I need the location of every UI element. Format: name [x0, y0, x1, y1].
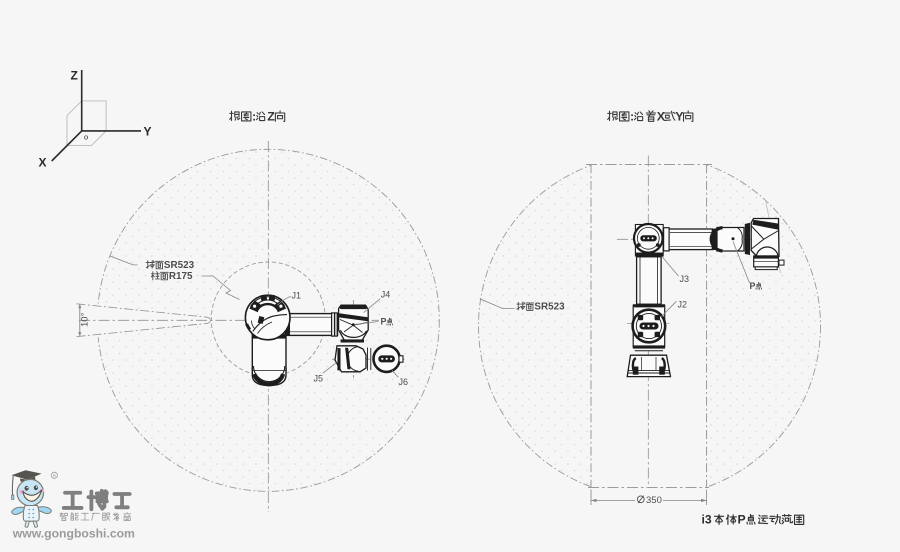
svg-text:P: P — [750, 281, 756, 291]
svg-text:Y: Y — [144, 125, 152, 139]
svg-text:P: P — [381, 317, 387, 327]
svg-text:J2: J2 — [678, 300, 688, 310]
svg-text:J4: J4 — [381, 290, 391, 300]
svg-text:350: 350 — [646, 495, 662, 506]
svg-text:P: P — [738, 513, 746, 527]
svg-text:R175: R175 — [169, 271, 193, 282]
svg-text:J6: J6 — [399, 377, 409, 387]
svg-text:J3: J3 — [680, 274, 690, 284]
svg-text:Z: Z — [267, 109, 275, 123]
svg-text:o: o — [84, 133, 88, 142]
svg-text:Z: Z — [71, 69, 78, 83]
svg-text:X: X — [39, 156, 47, 170]
svg-text:J5: J5 — [314, 373, 324, 383]
svg-text:X: X — [657, 109, 666, 123]
svg-text:10°: 10° — [80, 312, 91, 327]
svg-text::: : — [630, 109, 634, 123]
svg-text:SR523: SR523 — [164, 260, 195, 271]
svg-text:Y: Y — [675, 109, 684, 123]
svg-text:J1: J1 — [292, 290, 302, 300]
svg-text::: : — [252, 109, 256, 123]
svg-text:R: R — [53, 474, 57, 480]
svg-text:www.gongboshi.com: www.gongboshi.com — [12, 527, 135, 541]
svg-text:i3: i3 — [702, 513, 712, 527]
svg-text:SR523: SR523 — [534, 302, 565, 313]
